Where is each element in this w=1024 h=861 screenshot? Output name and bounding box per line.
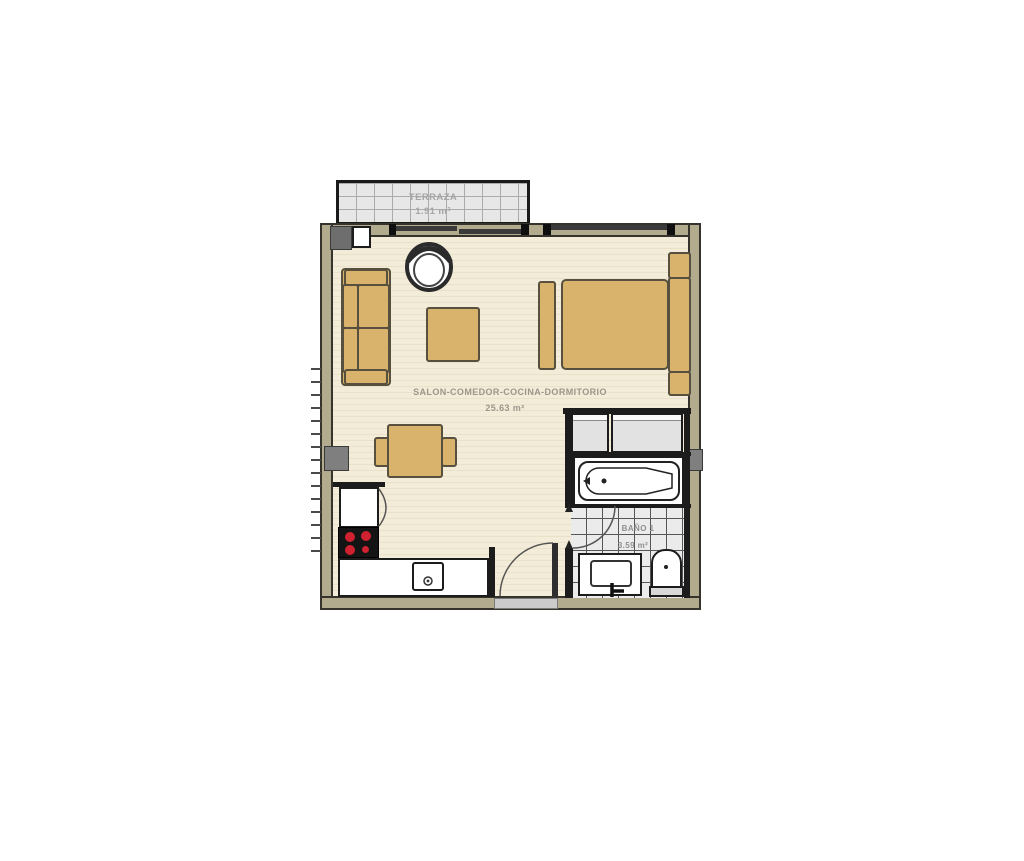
window-end-cap: [389, 224, 396, 235]
toilet-tank: [649, 586, 684, 597]
wall-hatching: [311, 446, 321, 448]
wardrobe-small: [571, 413, 609, 453]
stove-burner-icon: [345, 545, 355, 555]
wall-hatching: [311, 511, 321, 513]
wall-hatching: [311, 368, 321, 370]
kitchen-fridge: [339, 487, 379, 528]
bathroom-right-wall: [684, 414, 690, 598]
main-room-label: SALON-COMEDOR-COCINA-DORMITORIO: [340, 387, 680, 397]
main-room-area-label: 25.63 m²: [340, 403, 670, 413]
bed-headboard-top: [668, 252, 691, 279]
entry-door-leaf: [552, 543, 558, 597]
terrace-door-window-left: [396, 226, 457, 231]
wall-hatching: [311, 472, 321, 474]
bed-mattress: [561, 279, 669, 370]
floor-plan: TERRAZA 1.91 m² SALON-COMEDOR-COCINA-DOR…: [0, 0, 1024, 861]
sofa-seat-cushion: [357, 327, 390, 373]
vanity-basin: [590, 560, 632, 587]
wall-hatching: [311, 485, 321, 487]
wall-hatching: [311, 537, 321, 539]
entry-wall-stub: [489, 547, 495, 597]
stove-burner-icon: [362, 546, 369, 553]
entry-threshold: [494, 598, 558, 609]
bathroom-left-wall-lower: [565, 548, 573, 598]
bathroom-area-label: 3.59 m²: [583, 541, 683, 550]
column-left-wall: [324, 446, 349, 471]
wall-hatching: [311, 459, 321, 461]
wall-hatching: [311, 550, 321, 552]
terrace-area-label: 1.91 m²: [336, 206, 530, 217]
bathroom-label: BAÑO 1: [588, 524, 688, 533]
window-end-cap: [521, 224, 529, 235]
wall-hatching: [311, 524, 321, 526]
column-top-left: [330, 226, 352, 250]
shaft-top-left: [352, 226, 371, 248]
terrace-label: TERRAZA: [336, 192, 530, 203]
window-end-cap: [667, 224, 675, 235]
wall-hatching: [311, 420, 321, 422]
kitchen-sink: [412, 562, 444, 591]
window-end-cap: [543, 224, 551, 235]
wall-hatching: [311, 498, 321, 500]
dining-chair-right: [441, 437, 457, 467]
wall-left: [320, 223, 333, 610]
bedroom-window: [551, 225, 667, 230]
wall-hatching: [311, 433, 321, 435]
wall-hatching: [311, 407, 321, 409]
sofa-armrest-bottom: [344, 369, 388, 385]
terrace-door-window-right: [459, 229, 521, 234]
bathtub: [578, 461, 680, 501]
bathroom-left-wall-upper: [565, 414, 573, 506]
coffee-table: [426, 307, 480, 362]
bed-headboard: [668, 277, 691, 373]
wardrobe-large: [611, 413, 683, 453]
wall-hatching: [311, 381, 321, 383]
toilet: [651, 549, 682, 591]
stove-burner-icon: [361, 531, 371, 541]
dining-table: [387, 424, 443, 478]
kitchen-cooktop: [338, 527, 379, 558]
bed-foot-bench: [538, 281, 556, 370]
wall-hatching: [311, 394, 321, 396]
sofa-seat-cushion: [357, 284, 390, 329]
stove-burner-icon: [345, 532, 355, 542]
